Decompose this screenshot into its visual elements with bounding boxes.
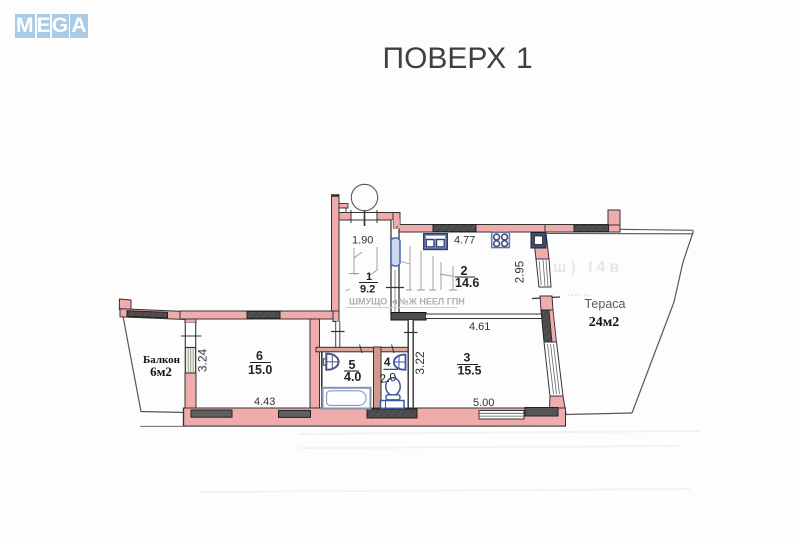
svg-text:6: 6 xyxy=(256,349,263,363)
svg-text:5.00: 5.00 xyxy=(473,397,494,409)
svg-text:3.22: 3.22 xyxy=(413,351,427,375)
svg-text:14.6: 14.6 xyxy=(455,276,479,290)
svg-text:4.61: 4.61 xyxy=(469,321,490,333)
svg-text:Тераса: Тераса xyxy=(585,297,626,311)
svg-text:15.5: 15.5 xyxy=(458,364,482,378)
svg-text:24м2: 24м2 xyxy=(589,315,620,330)
svg-text:6м2: 6м2 xyxy=(150,364,172,379)
svg-text:4.0: 4.0 xyxy=(344,370,361,384)
svg-text:1.90: 1.90 xyxy=(352,235,373,247)
svg-text:2.95: 2.95 xyxy=(515,261,527,283)
svg-text:ш) І4в: ш) І4в xyxy=(553,259,623,276)
svg-text:15.0: 15.0 xyxy=(248,363,272,377)
svg-text:9.2: 9.2 xyxy=(360,284,375,296)
svg-text:4: 4 xyxy=(384,357,391,369)
svg-text:4.43: 4.43 xyxy=(254,396,275,408)
svg-text:4.77: 4.77 xyxy=(454,235,475,247)
svg-text:ШМУЩО ◄№Ж НЕЕЛ ГПН: ШМУЩО ◄№Ж НЕЕЛ ГПН xyxy=(349,297,465,307)
svg-text:3.24: 3.24 xyxy=(196,348,210,372)
svg-text:2.0: 2.0 xyxy=(379,370,398,386)
svg-text:3: 3 xyxy=(464,351,471,365)
svg-text:1: 1 xyxy=(366,271,372,283)
